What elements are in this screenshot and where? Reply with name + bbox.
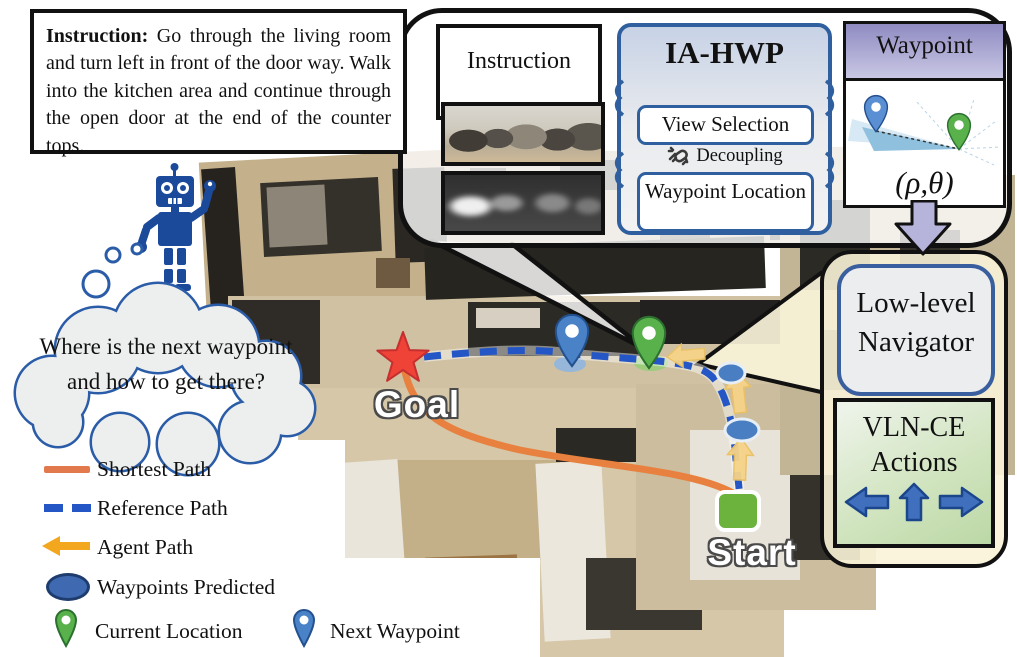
agent-path-swatch <box>40 535 92 557</box>
legend-label: Current Location <box>95 619 242 644</box>
waypoints-predicted-swatch <box>46 573 90 601</box>
legend: Shortest Path Reference Path Agent Path … <box>0 0 1017 657</box>
next-waypoint-swatch <box>290 608 318 650</box>
legend-label: Waypoints Predicted <box>97 575 275 600</box>
reference-path-swatch <box>44 504 92 512</box>
shortest-path-swatch <box>44 466 90 473</box>
legend-label: Next Waypoint <box>330 619 460 644</box>
legend-label: Shortest Path <box>97 457 211 482</box>
legend-label: Agent Path <box>97 535 193 560</box>
figure-canvas: Goal Start Instruction IA-HWP View Selec… <box>0 0 1017 657</box>
current-location-swatch <box>52 608 80 650</box>
down-block-arrow-icon <box>892 200 954 258</box>
legend-label: Reference Path <box>97 496 228 521</box>
